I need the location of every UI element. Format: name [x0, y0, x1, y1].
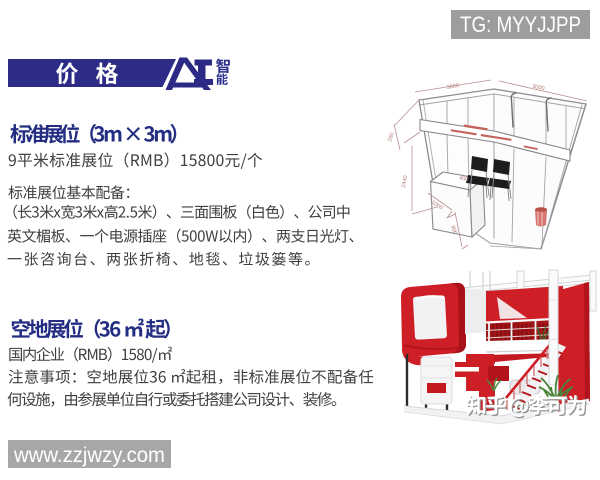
svg-text:2440: 2440: [401, 175, 409, 188]
svg-text:3000: 3000: [446, 83, 459, 91]
svg-text:3000: 3000: [532, 84, 545, 92]
svg-text:www.zzjwzy.com: www.zzjwzy.com: [13, 444, 165, 467]
svg-text:TG: MYYJJPP: TG: MYYJJPP: [460, 12, 581, 37]
svg-text:260: 260: [387, 132, 396, 143]
